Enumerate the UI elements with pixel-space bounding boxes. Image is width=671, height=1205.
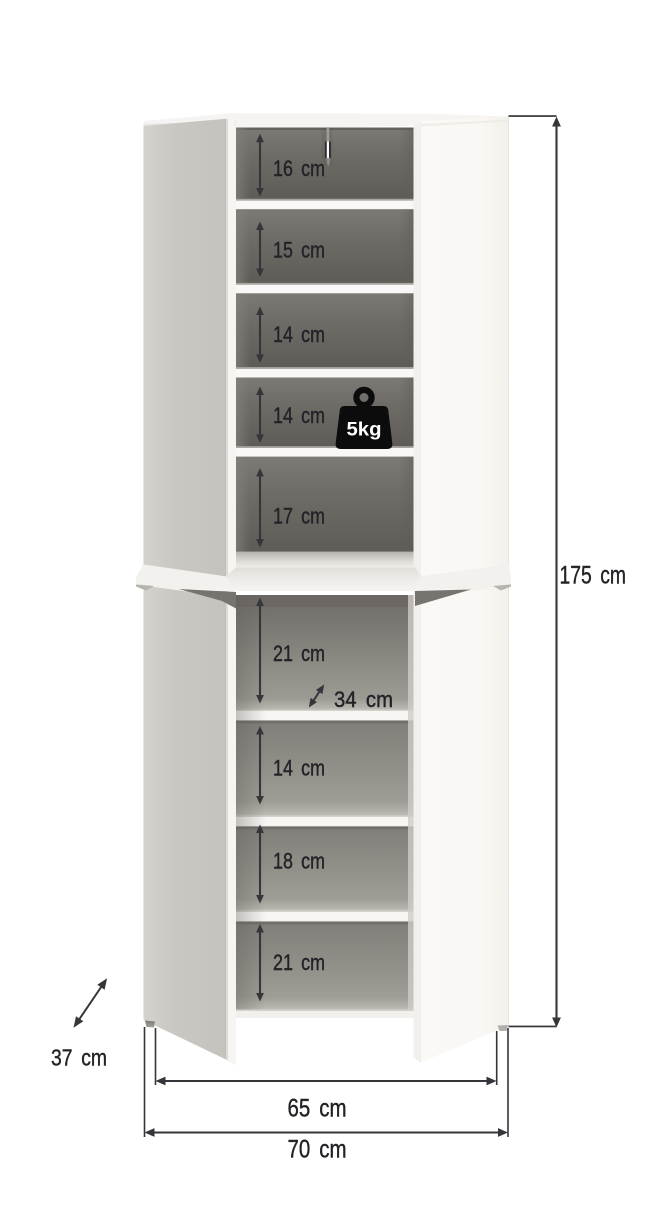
svg-text:21 cm: 21 cm [273, 950, 325, 975]
svg-text:14 cm: 14 cm [273, 756, 325, 781]
svg-text:15 cm: 15 cm [273, 238, 325, 263]
svg-text:34 cm: 34 cm [334, 687, 393, 712]
svg-text:16 cm: 16 cm [273, 156, 325, 181]
svg-text:65 cm: 65 cm [288, 1095, 347, 1123]
svg-text:14 cm: 14 cm [273, 403, 325, 428]
svg-text:18 cm: 18 cm [273, 849, 325, 874]
svg-text:14 cm: 14 cm [273, 322, 325, 347]
svg-text:17 cm: 17 cm [273, 504, 325, 529]
svg-text:5kg: 5kg [347, 420, 382, 441]
svg-text:21 cm: 21 cm [273, 641, 325, 666]
svg-text:70 cm: 70 cm [288, 1136, 347, 1164]
svg-text:37 cm: 37 cm [51, 1045, 107, 1071]
svg-text:175 cm: 175 cm [560, 562, 627, 590]
